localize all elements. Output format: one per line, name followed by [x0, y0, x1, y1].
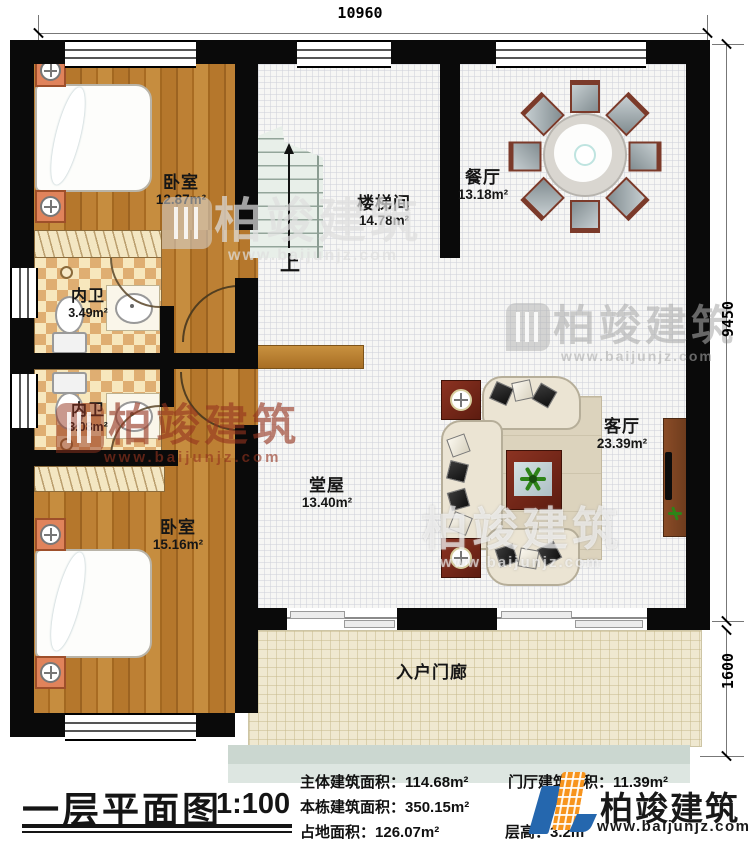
room-name: 卧室 [153, 518, 203, 537]
stat-label: 占地面积： [300, 824, 375, 841]
title-underline-thick [22, 824, 292, 828]
room-name: 卧室 [156, 173, 206, 192]
wall-bath-corridor-b [160, 369, 174, 407]
room-area: 14.78m² [357, 213, 411, 228]
wall-between-baths [34, 353, 258, 369]
room-area: 12.87m² [156, 192, 206, 207]
door-panel [575, 620, 643, 628]
title-underline-thin [22, 831, 292, 833]
porch-floor [248, 630, 702, 747]
stat-footprint-area: 占地面积：126.07m² [300, 821, 439, 842]
room-label-bedroom1: 卧室 12.87m² [156, 173, 206, 207]
stair-direction-line [288, 152, 290, 248]
stat-label: 主体建筑面积： [300, 774, 405, 791]
room-label-bath1: 内卫 3.49m² [68, 288, 108, 320]
dimension-ext [38, 15, 39, 40]
room-label-bath2: 内卫 3.08m² [68, 402, 108, 434]
table-lamp [40, 662, 61, 683]
stat-value: 114.68m² [405, 774, 468, 791]
stair-direction-arrow [284, 143, 294, 154]
room-label-living: 客厅 23.39m² [597, 417, 647, 451]
dining-chair [570, 80, 600, 113]
table-lamp [450, 547, 472, 569]
wardrobe-bedroom1 [34, 230, 162, 258]
dining-chair [570, 200, 600, 233]
room-area: 3.49m² [68, 306, 108, 320]
room-name: 内卫 [68, 288, 108, 306]
drawing-scale: 1:100 [216, 788, 290, 821]
dining-table-center [574, 144, 596, 166]
wall-interior-vertical-lower [235, 425, 258, 713]
dimension-ext [700, 756, 744, 757]
room-name: 客厅 [597, 417, 647, 436]
stat-main-area: 主体建筑面积：114.68m² [300, 771, 468, 792]
wall-interior-vertical-mid [235, 278, 258, 353]
room-area: 15.16m² [153, 537, 203, 552]
stat-value: 126.07m² [375, 824, 439, 841]
window-top-stairwell [297, 40, 391, 68]
room-name: 堂屋 [302, 476, 352, 495]
room-label-dining: 餐厅 13.18m² [458, 168, 508, 202]
room-label-bedroom2: 卧室 15.16m² [153, 518, 203, 552]
toilet-tank [52, 332, 87, 354]
console-table [252, 345, 364, 369]
window-top-dining [496, 40, 646, 68]
entry-door-right [497, 608, 647, 630]
dining-chair [629, 142, 662, 172]
tv-screen [665, 452, 672, 500]
stat-label: 本栋建筑面积： [300, 799, 405, 816]
room-area: 3.08m² [68, 420, 108, 434]
table-lamp [450, 389, 472, 411]
room-name: 餐厅 [458, 168, 508, 187]
entry-door-left [287, 608, 397, 630]
room-label-hall: 堂屋 13.40m² [302, 476, 352, 510]
room-name: 楼梯间 [357, 194, 411, 213]
brand-logo-icon [533, 770, 595, 838]
door-panel [290, 611, 345, 619]
table-lamp [40, 524, 61, 545]
room-label-stairwell: 楼梯间 14.78m² [357, 194, 411, 228]
dining-chair [509, 142, 542, 172]
dimension-right-lower-value: 1600 [719, 641, 737, 701]
toilet-tank [52, 372, 87, 394]
window-top-bedroom1 [65, 40, 196, 68]
dimension-right-upper-value: 9450 [719, 289, 737, 349]
wall-stair-dining-stub [440, 64, 460, 258]
wall-right [686, 40, 710, 630]
dimension-top-value: 10960 [320, 4, 400, 22]
wardrobe-bedroom2 [34, 466, 165, 492]
end-table [441, 380, 481, 420]
room-label-porch: 入户门廊 [396, 663, 468, 682]
room-area: 13.18m² [458, 187, 508, 202]
window-left-bath2 [10, 374, 38, 428]
window-bedroom2-bottom [65, 713, 196, 741]
window-left-bath1 [10, 268, 38, 318]
nightstand [35, 518, 66, 551]
brand-url: www.baijunjz.com [597, 818, 750, 835]
porch-step-1 [228, 745, 690, 764]
stair-up-label: 上 [280, 247, 300, 276]
wall-bath2-bottom [34, 450, 178, 466]
sink-drain [130, 304, 134, 308]
dimension-ext [707, 15, 708, 40]
room-area: 13.40m² [302, 495, 352, 510]
door-panel [344, 620, 394, 628]
room-name: 入户门廊 [396, 663, 468, 682]
bath-lamp [60, 266, 73, 279]
table-lamp [40, 196, 61, 217]
stat-building-area: 本栋建筑面积：350.15m² [300, 796, 469, 817]
door-panel [501, 611, 572, 619]
wall-bath-corridor-a [160, 306, 174, 353]
room-area: 23.39m² [597, 436, 647, 451]
dimension-top-line [38, 33, 708, 34]
room-name: 内卫 [68, 402, 108, 420]
sofa-pillow [517, 547, 539, 569]
nightstand [35, 190, 66, 223]
floor-plan-canvas: 上 [0, 0, 750, 851]
end-table [441, 538, 481, 578]
plant-pot [529, 475, 537, 483]
wall-interior-vertical-upper [235, 64, 258, 230]
nightstand [35, 656, 66, 689]
stat-value: 350.15m² [405, 799, 469, 816]
